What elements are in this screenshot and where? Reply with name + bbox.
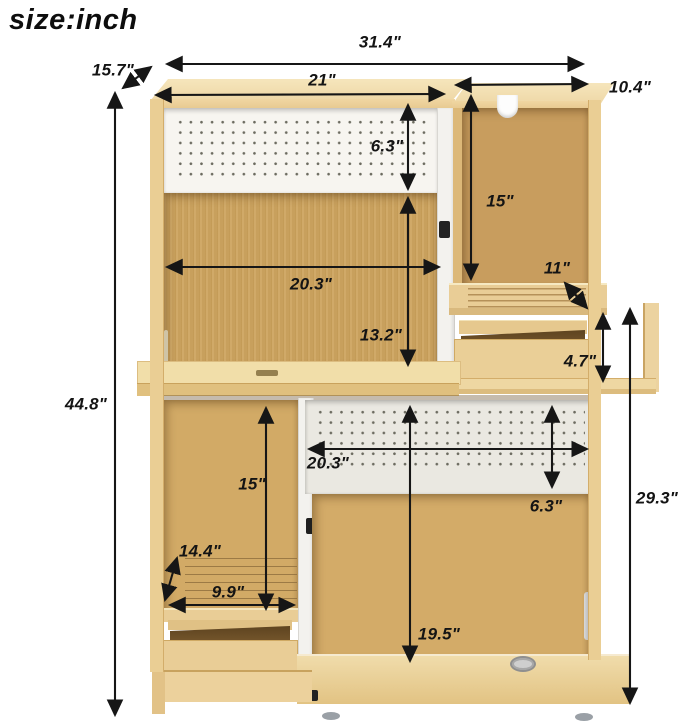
dim-label-right-top-width: 10.4" xyxy=(609,79,651,96)
base-plinth-left xyxy=(152,670,312,702)
foot-center-icon xyxy=(322,712,340,720)
foot-right-icon xyxy=(575,713,593,721)
lower-pegboard-drawer-front xyxy=(305,400,593,494)
upper-divider-hinge-icon xyxy=(439,221,450,238)
lower-pegboard-holes xyxy=(315,407,585,472)
dim-label-lower-right-height: 29.3" xyxy=(636,490,678,507)
dim-label-right-compartment-height: 15" xyxy=(486,193,514,210)
dim-label-lower-shelf-width: 9.9" xyxy=(212,584,245,601)
left-leg xyxy=(152,672,165,714)
dim-label-lower-pegboard-height: 6.3" xyxy=(530,498,563,515)
size-unit-title: size:inch xyxy=(9,4,138,37)
product-dimension-diagram: size:inch xyxy=(0,0,679,723)
dim-label-lower-left-depth: 14.4" xyxy=(179,543,221,560)
right-stile xyxy=(588,100,601,660)
dim-label-hutch-width: 21" xyxy=(308,72,336,89)
dim-label-lower-left-height: 15" xyxy=(238,476,266,493)
dim-label-overall-height: 44.8" xyxy=(65,396,107,413)
right-slatted-shelf-edge xyxy=(449,308,607,315)
dim-label-middle-width: 20.3" xyxy=(290,276,332,293)
bottom-drop-door xyxy=(297,654,630,704)
dim-label-top-depth: 15.7" xyxy=(92,62,134,79)
right-drawer-shelf-edge xyxy=(442,389,656,394)
dim-label-bottom-height: 19.5" xyxy=(418,626,460,643)
right-slatted-shelf-grooves xyxy=(468,288,586,309)
cable-hole xyxy=(497,95,518,118)
dim-label-lower-pegboard-width: 20.3" xyxy=(307,455,349,472)
desk-surface xyxy=(137,361,461,385)
dim-label-top-pegboard-height: 6.3" xyxy=(371,138,404,155)
right-compartment-side-wall xyxy=(453,108,462,286)
left-stile xyxy=(150,99,164,672)
door-ring-handle-icon xyxy=(510,656,536,672)
dim-label-overall-width: 31.4" xyxy=(359,34,401,51)
dim-label-right-drawer-height: 4.7" xyxy=(564,353,597,370)
dim-label-middle-height: 13.2" xyxy=(360,327,402,344)
desk-latch-hardware-icon xyxy=(256,370,278,376)
dim-label-right-shelf-depth: 11" xyxy=(544,260,570,277)
